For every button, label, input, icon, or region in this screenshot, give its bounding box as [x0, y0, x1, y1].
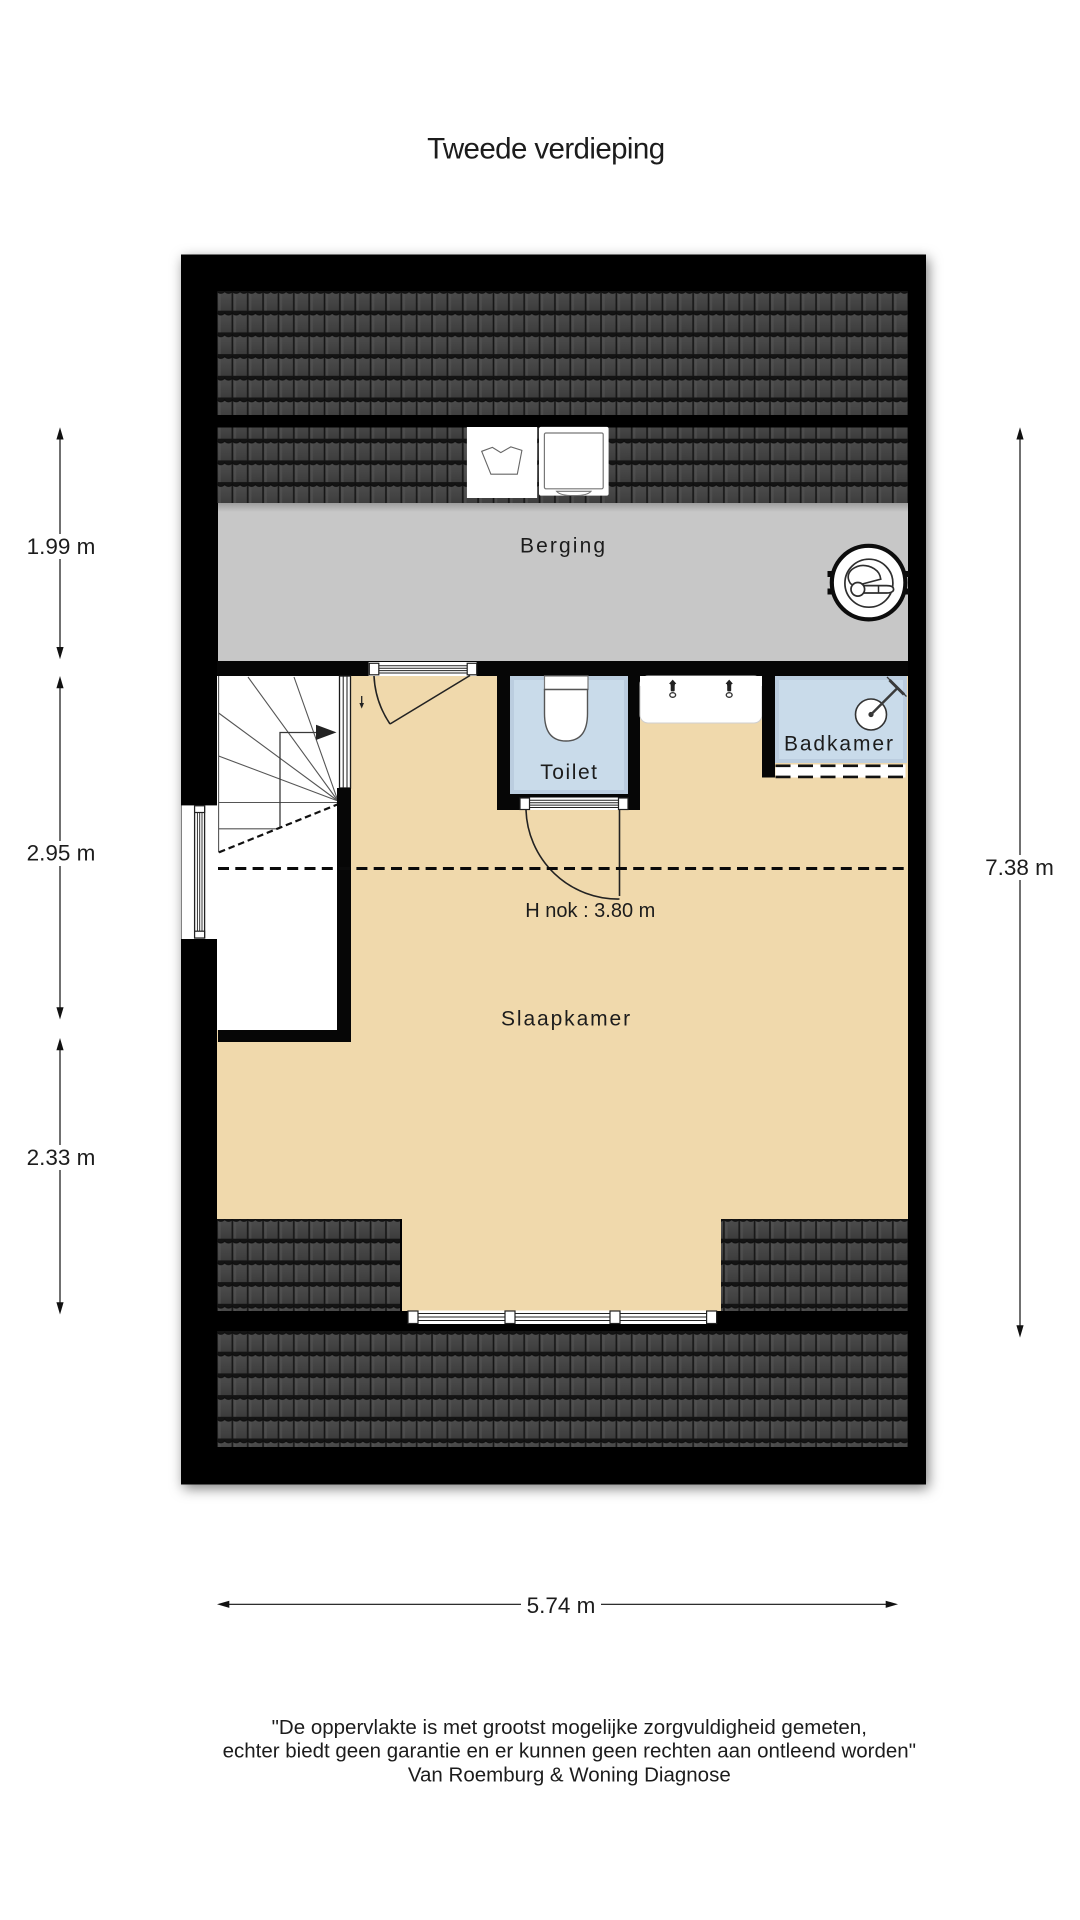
svg-text:2.33 m: 2.33 m: [27, 1145, 96, 1170]
svg-text:"De oppervlakte is met grootst: "De oppervlakte is met grootst mogelijke…: [272, 1716, 867, 1739]
svg-text:7.38 m: 7.38 m: [985, 855, 1054, 880]
svg-text:Berging: Berging: [520, 535, 607, 558]
svg-text:Slaapkamer: Slaapkamer: [501, 1008, 632, 1031]
svg-text:echter biedt geen garantie en: echter biedt geen garantie en er kunnen …: [223, 1740, 916, 1763]
svg-text:1.99 m: 1.99 m: [27, 534, 96, 559]
svg-text:5.74 m: 5.74 m: [527, 1593, 596, 1618]
svg-text:2.95 m: 2.95 m: [27, 841, 96, 866]
svg-text:Van Roemburg & Woning Diagnose: Van Roemburg & Woning Diagnose: [408, 1763, 731, 1786]
svg-text:Badkamer: Badkamer: [784, 733, 895, 756]
svg-text:Toilet: Toilet: [540, 761, 598, 784]
svg-text:Tweede verdieping: Tweede verdieping: [427, 133, 664, 166]
svg-text:H nok : 3.80 m: H nok : 3.80 m: [525, 900, 655, 922]
